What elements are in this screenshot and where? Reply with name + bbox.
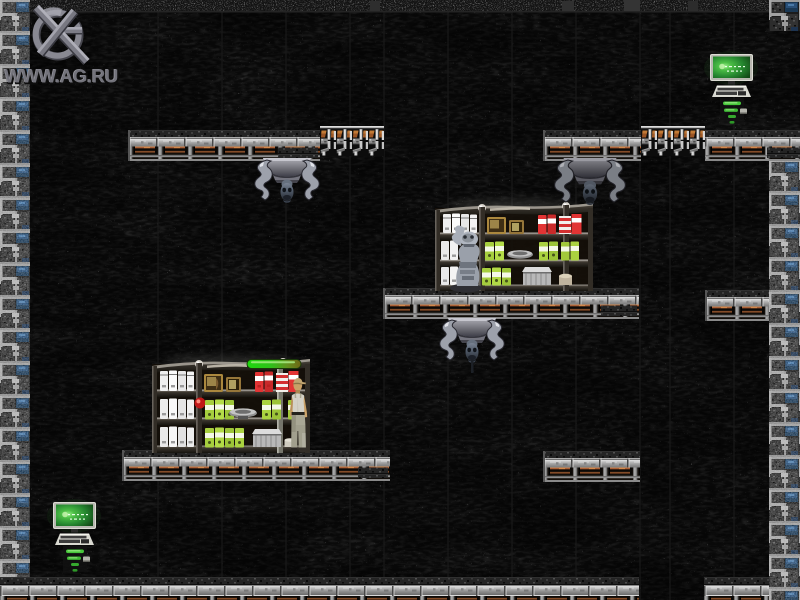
svg-text:WWW.AG.RU: WWW.AG.RU: [5, 66, 118, 87]
